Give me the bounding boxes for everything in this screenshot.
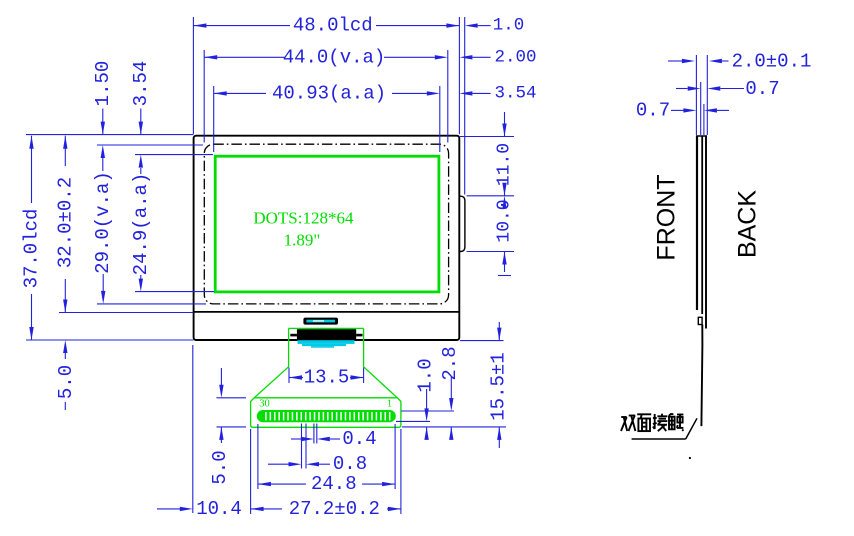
svg-text:3.54: 3.54 [130, 61, 152, 107]
svg-text:40.93(a.a): 40.93(a.a) [272, 82, 386, 104]
svg-text:32.0±0.2: 32.0±0.2 [54, 177, 76, 268]
svg-text:1: 1 [387, 399, 392, 410]
svg-text:48.0lcd: 48.0lcd [293, 15, 373, 37]
svg-text:0.7: 0.7 [745, 78, 779, 100]
svg-text:24.8: 24.8 [311, 473, 357, 495]
svg-text:3.54: 3.54 [494, 83, 536, 103]
svg-text:5.0: 5.0 [209, 450, 231, 484]
svg-text:24.9(a.a): 24.9(a.a) [130, 173, 152, 276]
svg-text:2.8: 2.8 [439, 346, 461, 380]
svg-text:0.8: 0.8 [333, 453, 367, 475]
svg-text:1.0: 1.0 [493, 16, 525, 36]
svg-text:2.0±0.1: 2.0±0.1 [732, 51, 812, 73]
svg-text:0.4: 0.4 [342, 428, 376, 450]
svg-text:1.0: 1.0 [415, 358, 437, 392]
svg-text:FRONT: FRONT [653, 174, 681, 260]
svg-text:2.00: 2.00 [494, 47, 536, 67]
svg-text:0.7: 0.7 [636, 100, 670, 122]
svg-text:44.0(v.a): 44.0(v.a) [283, 46, 386, 68]
svg-text:1.89": 1.89" [284, 231, 321, 250]
svg-text:10.4: 10.4 [196, 498, 242, 520]
svg-text:27.2±0.2: 27.2±0.2 [289, 498, 380, 520]
svg-text:10.0: 10.0 [495, 199, 515, 242]
svg-text:13.5: 13.5 [304, 367, 350, 389]
svg-text:1.50: 1.50 [92, 61, 114, 107]
svg-text:37.0lcd: 37.0lcd [21, 209, 43, 289]
svg-text:30: 30 [259, 398, 270, 409]
svg-text:DOTS:128*64: DOTS:128*64 [253, 209, 354, 228]
svg-text:15.5±1: 15.5±1 [488, 352, 510, 420]
svg-text:BACK: BACK [733, 190, 761, 258]
svg-text:11.0: 11.0 [495, 143, 515, 186]
svg-text:5.0: 5.0 [55, 365, 77, 399]
svg-text:29.0(v.a): 29.0(v.a) [92, 171, 114, 274]
